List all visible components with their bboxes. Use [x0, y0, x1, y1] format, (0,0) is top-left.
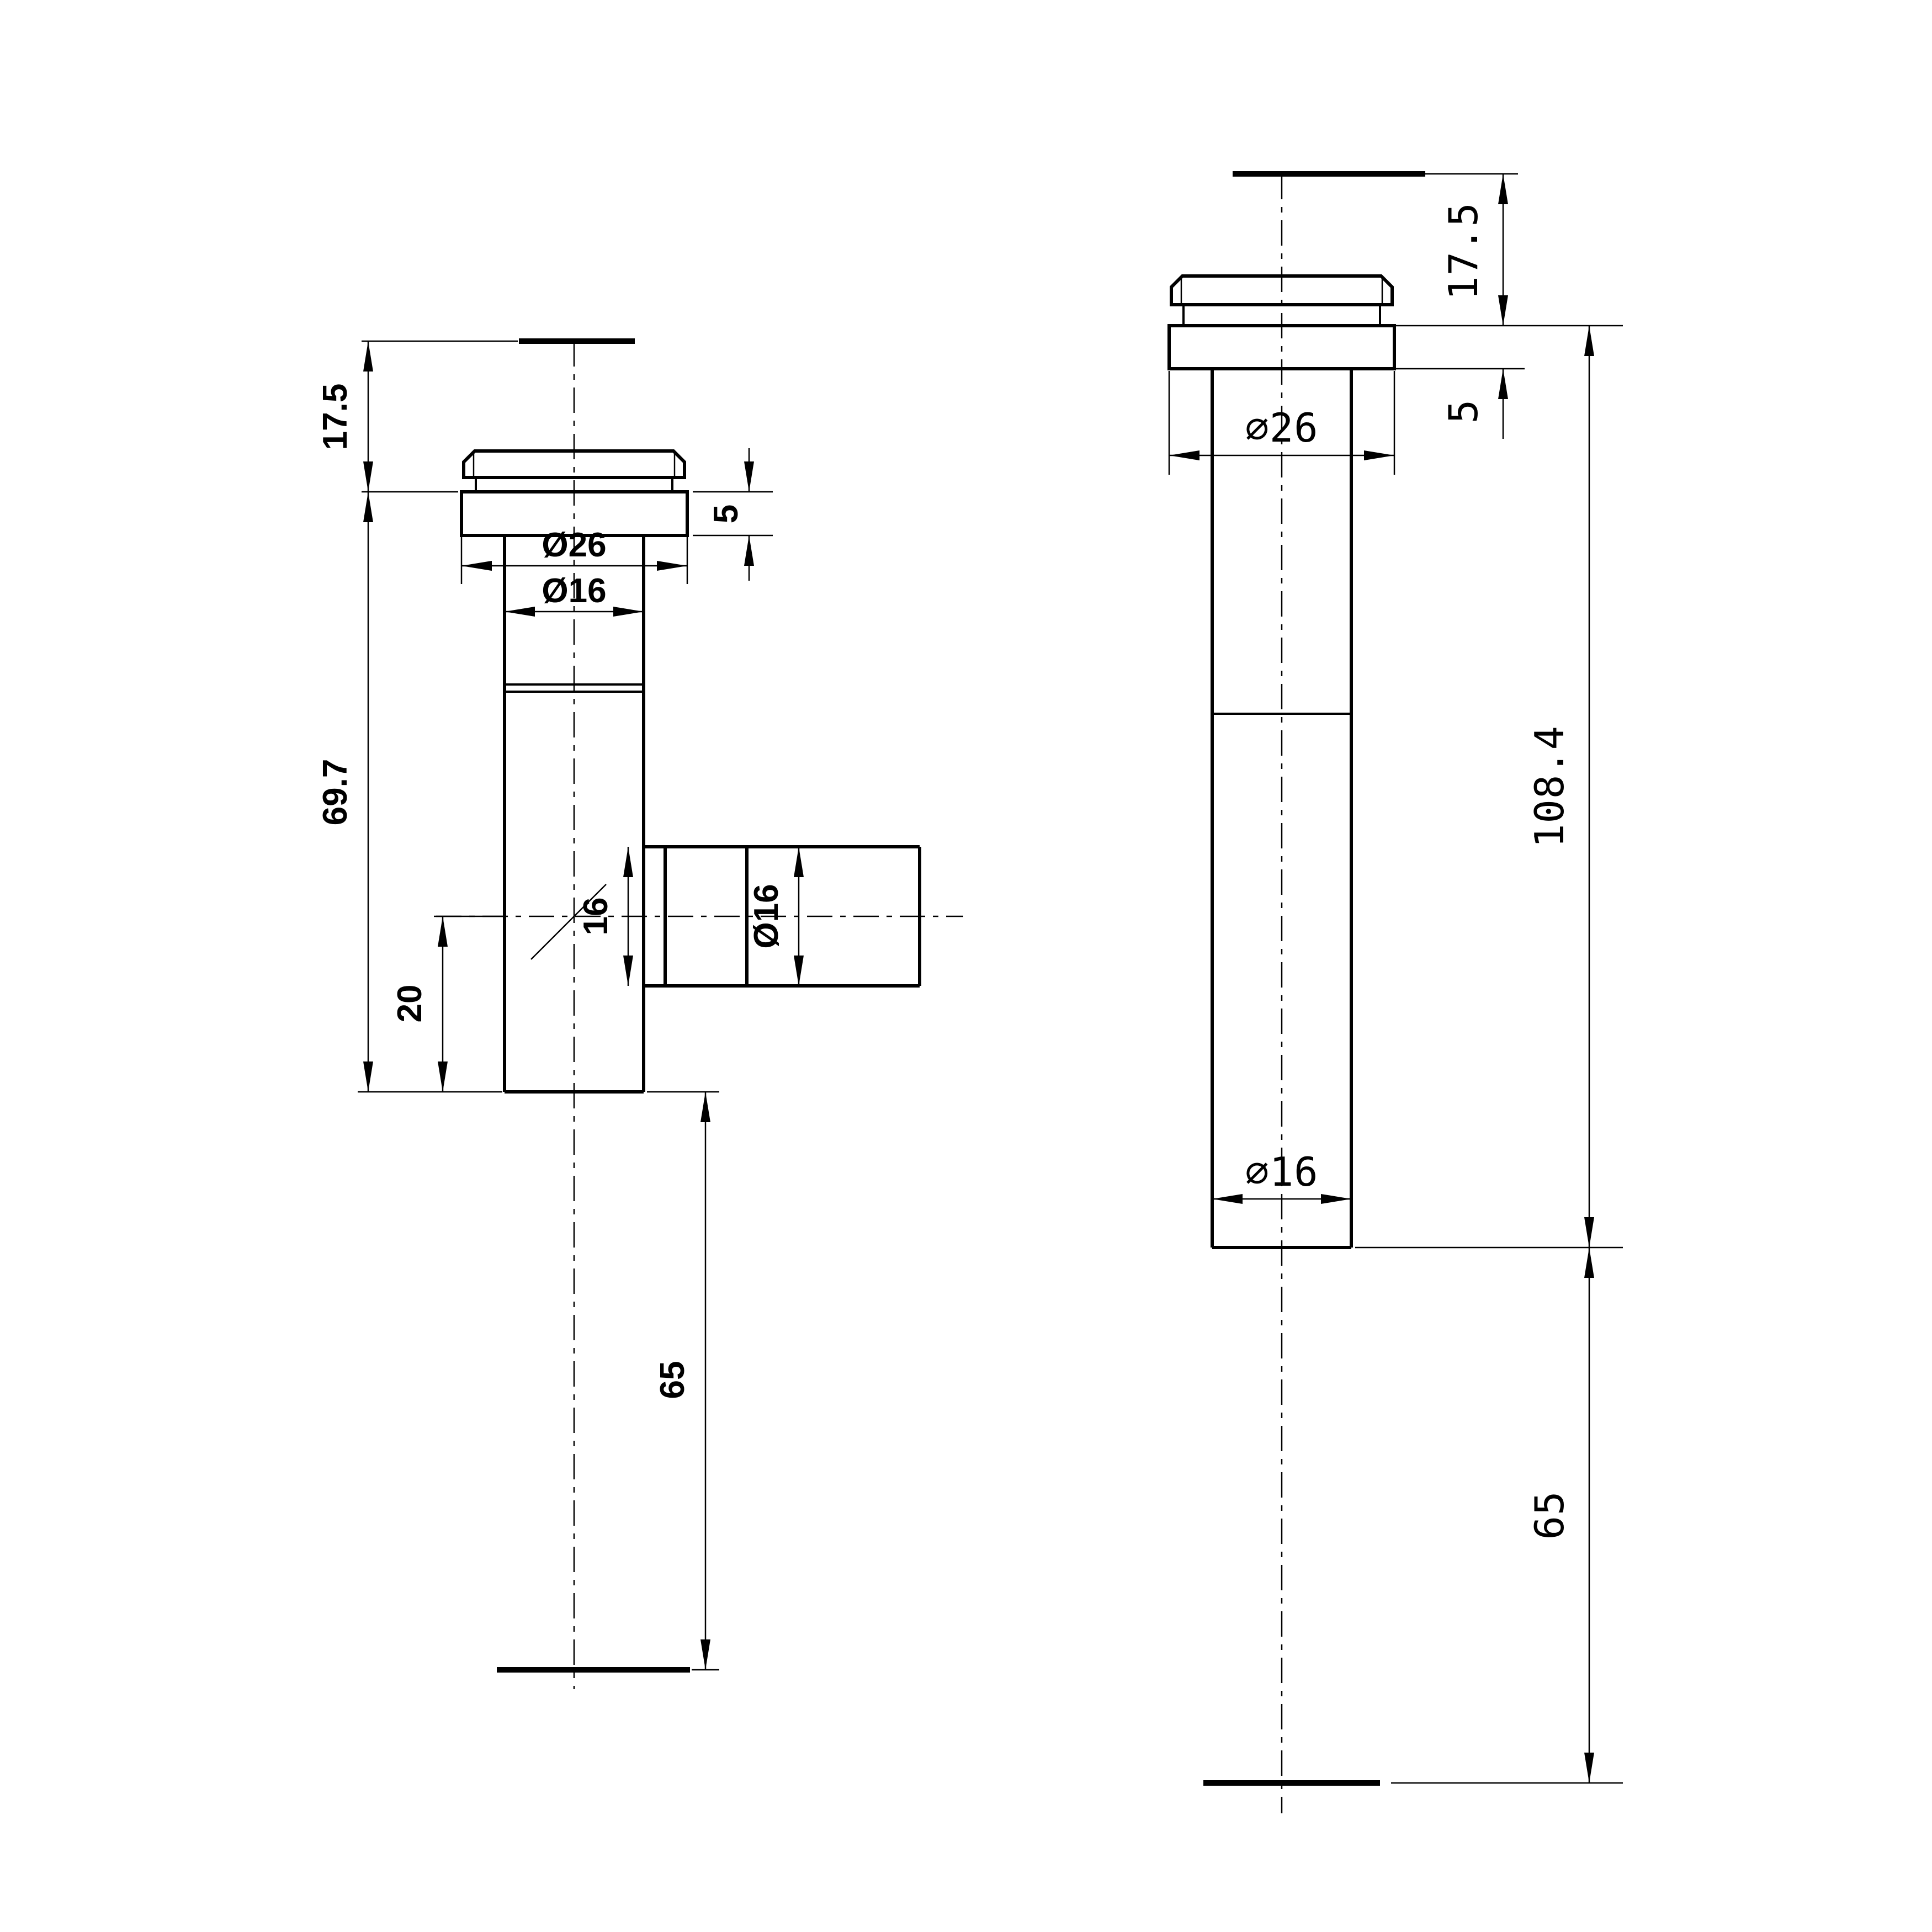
left-view: 17.5 69.7 20 65	[316, 341, 963, 1689]
arrowhead-right	[613, 607, 644, 617]
dim-label-cap-height: 17.5	[316, 384, 354, 450]
arrowhead-down	[363, 1061, 373, 1092]
arrowhead-right	[1321, 1194, 1351, 1204]
left-dim-outlet-offset: 20	[391, 916, 505, 1092]
arrowhead-up	[1584, 326, 1594, 356]
arrowhead-left	[505, 607, 535, 617]
arrowhead-down	[363, 461, 373, 492]
dim-label-overall-length: 108.4	[1526, 725, 1573, 848]
left-part-outline	[362, 341, 920, 1670]
dim-label-branch-diameter: Ø16	[747, 884, 785, 948]
dim-label-tube-diameter: ∅16	[1245, 1149, 1318, 1195]
arrowhead-right	[657, 561, 687, 571]
arrowhead-up	[1498, 369, 1508, 399]
dim-label-body-length: 69.7	[316, 759, 354, 826]
arrowhead-down	[744, 461, 754, 492]
arrowhead-up	[363, 341, 373, 371]
dim-label-tail-length: 65	[1526, 1491, 1573, 1540]
right-dim-tail-length: 65	[1391, 1248, 1623, 1783]
technical-drawing-canvas: 17.5 69.7 20 65	[0, 0, 1932, 1932]
arrowhead-right	[1364, 450, 1394, 460]
arrowhead-up	[700, 1092, 710, 1122]
dim-label-flange-diameter: Ø26	[542, 526, 606, 564]
arrowhead-left	[461, 561, 492, 571]
arrowhead-up	[1584, 1248, 1594, 1278]
right-view: 17.5 5 ∅26 108.4 ∅16	[1169, 174, 1623, 1813]
dim-label-flange-diameter: ∅26	[1245, 405, 1318, 451]
dim-label-flange-thickness: 5	[707, 505, 745, 523]
dim-label-flange-thickness: 5	[1440, 399, 1487, 423]
arrowhead-up	[1498, 174, 1508, 204]
arrowhead-up	[623, 847, 633, 877]
arrowhead-up	[744, 535, 754, 566]
right-dim-flange-thickness: 5	[1394, 369, 1525, 439]
right-dim-overall-length: 108.4	[1355, 326, 1623, 1248]
right-dim-cap-height: 17.5	[1394, 174, 1623, 326]
left-dim-neck-diameter: Ø16	[505, 572, 644, 617]
arrowhead-down	[794, 956, 804, 986]
arrowhead-down	[700, 1639, 710, 1670]
dim-label-outlet-offset: 20	[391, 985, 429, 1023]
arrowhead-left	[1169, 450, 1199, 460]
dim-label-tail-length: 65	[654, 1361, 692, 1399]
left-dim-tail-length: 65	[647, 1092, 719, 1670]
arrowhead-up	[363, 492, 373, 522]
arrowhead-up	[438, 916, 448, 947]
dim-label-neck-diameter: Ø16	[542, 572, 606, 610]
left-dim-cap-height: 17.5	[316, 341, 458, 492]
arrowhead-down	[438, 1061, 448, 1092]
left-dim-flange-thickness: 5	[693, 448, 773, 581]
arrowhead-down	[623, 956, 633, 986]
left-centerlines	[436, 341, 963, 1689]
arrowhead-down	[1584, 1217, 1594, 1248]
arrowhead-left	[1212, 1194, 1243, 1204]
arrowhead-up	[794, 847, 804, 877]
dim-label-branch-bore: 16	[577, 898, 615, 936]
arrowhead-down	[1498, 295, 1508, 326]
arrowhead-down	[1584, 1753, 1594, 1783]
dim-label-cap-height: 17.5	[1440, 202, 1487, 300]
